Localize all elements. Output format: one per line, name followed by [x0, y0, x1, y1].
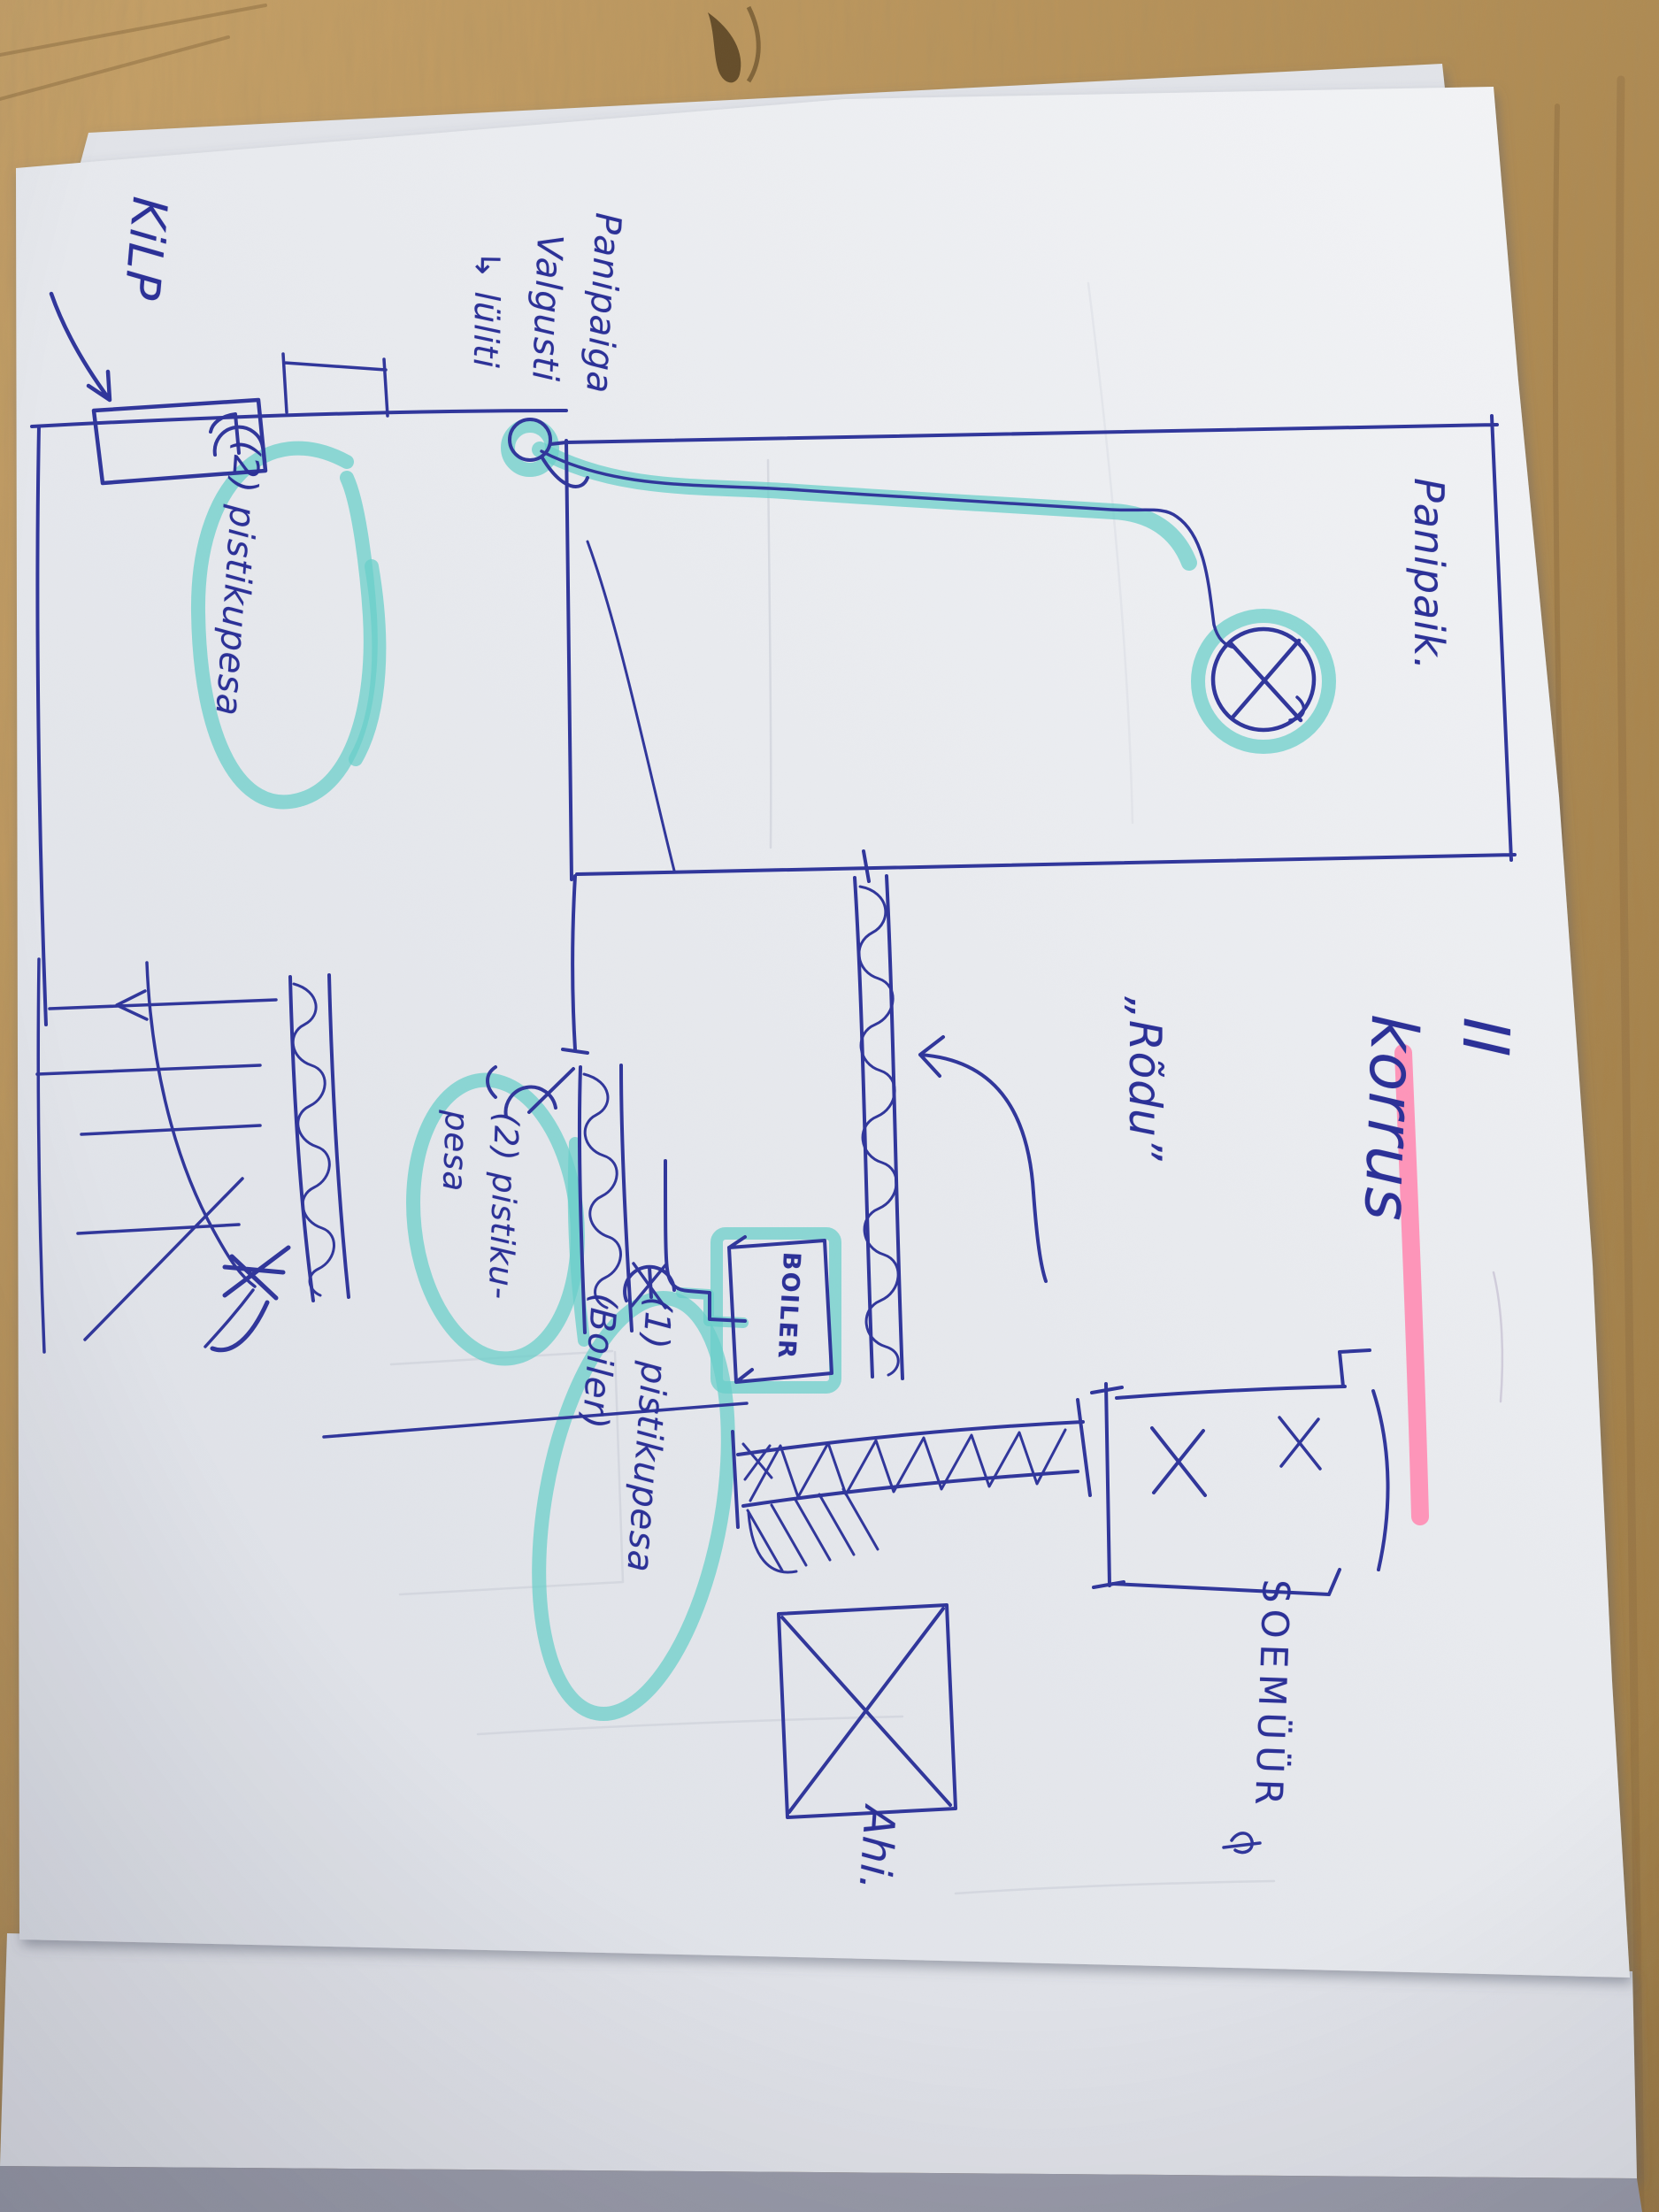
warm-wall-label: SOEMÜÜR: [1240, 1578, 1302, 1812]
outlet-room-label: (2) pistiku- pesa: [426, 1110, 531, 1301]
balcony-label: „Rõdu”: [1113, 996, 1178, 1162]
room-label-panipaik: Panipaik.: [1399, 478, 1458, 671]
boiler-label: BOILER: [769, 1251, 809, 1361]
panel-label-kilp: KiLP: [106, 194, 184, 303]
stove-label: Ahi.: [842, 1804, 910, 1893]
page-title: II korrus: [1340, 1013, 1532, 1226]
photo-of-hand-drawn-floorplan: II korrus Panipaik. KiLP Panipaiga Valgu…: [0, 0, 1659, 2212]
storage-light-label-line3: ↳ lüliti: [461, 250, 511, 369]
storage-light-label-line1: Panipaiga: [572, 211, 634, 396]
storage-light-label-line2: Valgusti: [518, 234, 575, 383]
outlet-boiler-label: (1) pistikupesa (Boiler): [557, 1291, 686, 1574]
